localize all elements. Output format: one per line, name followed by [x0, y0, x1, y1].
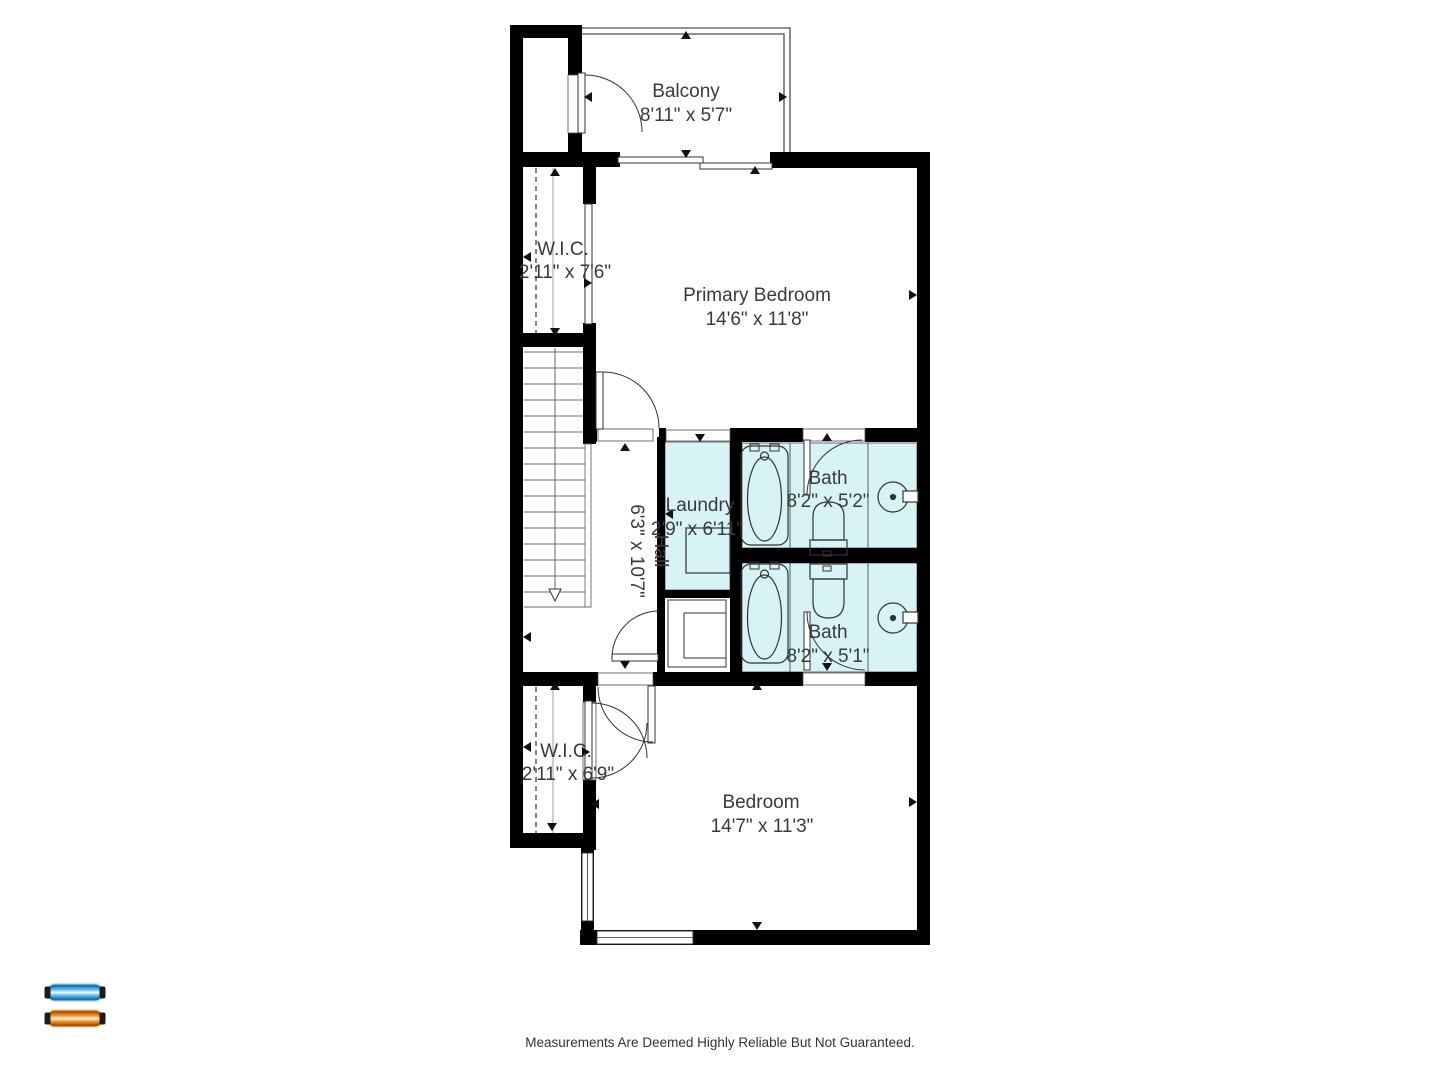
floorplan-svg: Balcony 8'11" x 5'7" W.I.C. 2'11" x 7'6"… [0, 0, 1440, 1080]
bedroom-label: Bedroom [722, 792, 799, 813]
bath-top-dims: 8'2" x 5'2" [786, 491, 869, 512]
wic-bottom-dims: 2'11" x 6'9" [522, 764, 614, 785]
logo-blue-tube [45, 986, 106, 1000]
primary-bedroom-door [596, 372, 659, 429]
logo-orange-tube [45, 1012, 106, 1026]
hall-label: Hall [650, 535, 671, 568]
balcony-slider [618, 157, 772, 169]
primary-door-opening [598, 429, 653, 441]
floorplan-page: Balcony 8'11" x 5'7" W.I.C. 2'11" x 7'6"… [0, 0, 1440, 1080]
primary-bedroom-dims: 14'6" x 11'8" [706, 309, 809, 330]
disclaimer-text: Measurements Are Deemed Highly Reliable … [525, 1035, 914, 1050]
stair-railing [585, 444, 591, 607]
hall-dims: 6'3" x 10'7" [626, 504, 647, 598]
bedroom-door-opening [598, 673, 653, 685]
utility-closet-door [612, 611, 658, 661]
stair-direction-arrow [549, 589, 561, 601]
slider-panel-right [700, 163, 772, 169]
primary-bedroom-label: Primary Bedroom [683, 285, 831, 306]
balcony-dims: 8'11" x 5'7" [640, 105, 732, 126]
bath-top-label: Bath [808, 468, 847, 489]
bath-bottom-label: Bath [808, 622, 847, 643]
stairs [524, 348, 591, 607]
bath-bottom-door-opening [803, 673, 865, 685]
wic-top-dims: 2'11" x 7'6" [519, 262, 611, 283]
wic-top-label: W.I.C. [537, 239, 589, 260]
balcony-door [578, 73, 642, 133]
bedroom-dims: 14'7" x 11'3" [711, 816, 814, 837]
bath-top-door-opening [803, 429, 865, 441]
utility-closet [668, 600, 726, 667]
slider-panel-left [618, 157, 703, 163]
balcony-label: Balcony [652, 81, 720, 102]
wic-bottom-label: W.I.C. [540, 741, 592, 762]
bath-bottom-dims: 8'2" x 5'1" [786, 646, 869, 667]
laundry-label: Laundry [666, 495, 735, 516]
laundry-floor [665, 442, 730, 590]
company-logo [45, 986, 106, 1026]
